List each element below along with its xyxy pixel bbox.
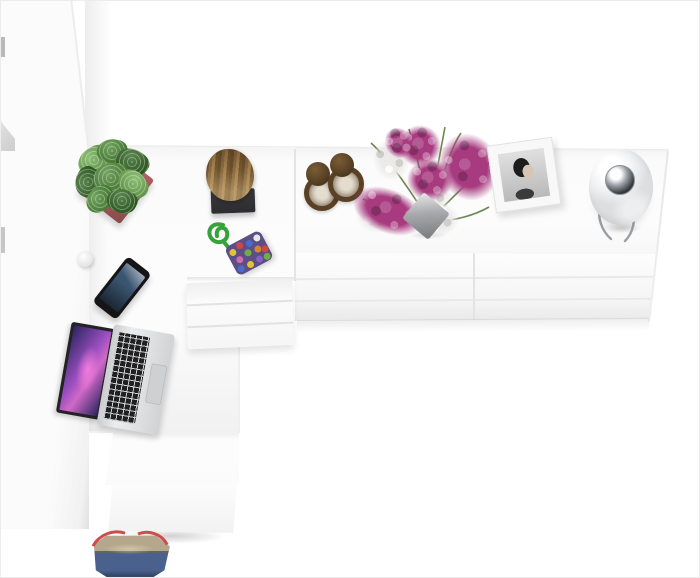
laptop-keyboard — [103, 332, 150, 424]
pedestal-drawer-seam — [187, 300, 293, 307]
desk-return-panel — [105, 433, 239, 485]
portrait-photo — [498, 148, 550, 202]
wardrobe-cabinet — [1, 1, 89, 529]
laptop — [55, 317, 175, 436]
pedestal-drawer-unit — [186, 279, 294, 350]
lamp-chrome-eye — [605, 165, 635, 195]
sideboard-drawer-divider — [473, 253, 475, 321]
wardrobe-handle — [1, 227, 5, 253]
tote-bag — [85, 529, 177, 578]
sideboard-drawer-seam — [295, 276, 657, 281]
hourglass-cap — [306, 162, 330, 186]
desk-hook — [77, 251, 93, 267]
wardrobe-handle — [1, 37, 5, 57]
photo-frame — [487, 137, 562, 214]
pedestal-drawer-seam — [187, 322, 293, 329]
magenta-flower-spray — [407, 159, 453, 201]
desk-sideboard-seam — [294, 149, 296, 281]
lower-cabinet — [107, 485, 237, 533]
wardrobe-cast-shadow — [85, 1, 123, 151]
sideboard-drawer-seam — [295, 298, 657, 303]
sideboard-drawer-front — [295, 253, 657, 321]
furniture-scene-render — [0, 0, 700, 578]
sideboard-floor-shadow — [297, 318, 649, 333]
plant-leaves — [71, 137, 159, 225]
